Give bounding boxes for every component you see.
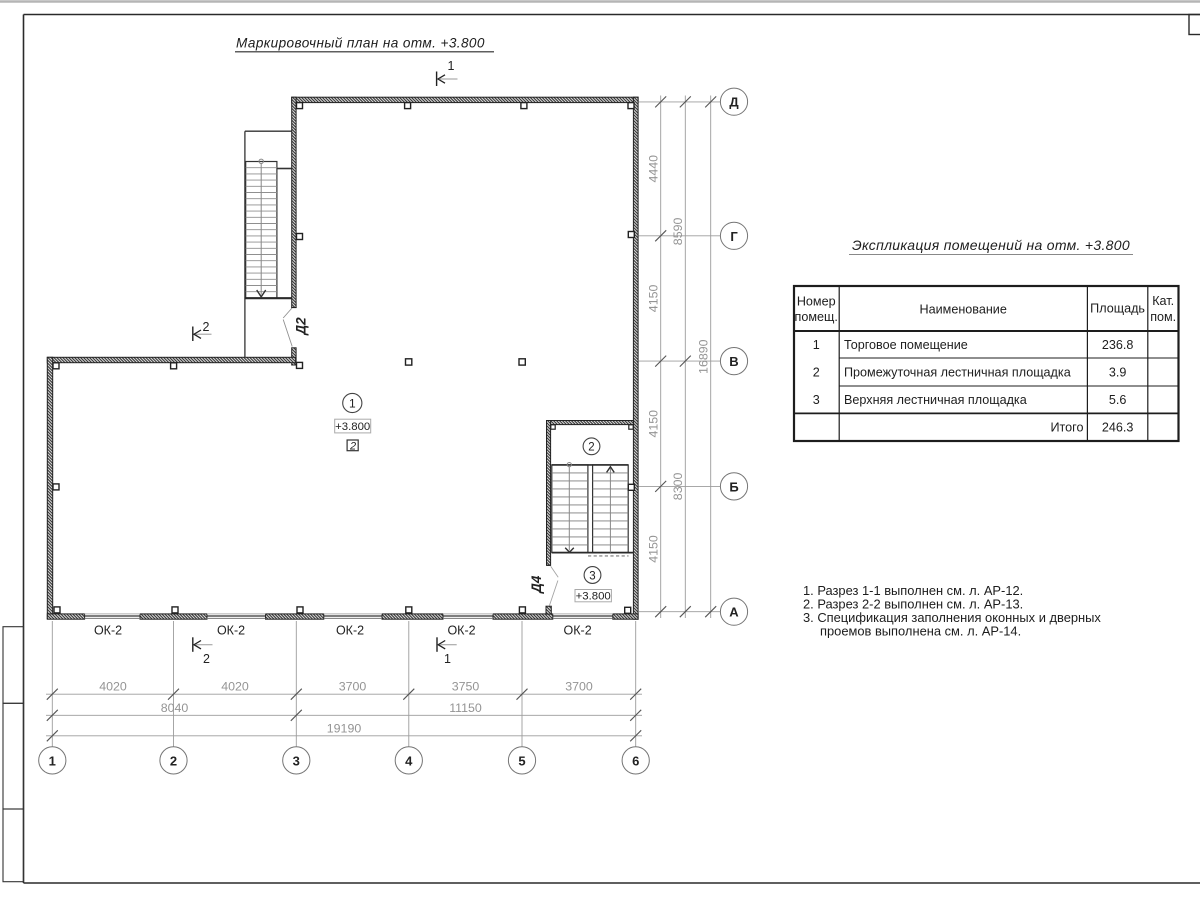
svg-text:4150: 4150 <box>647 410 661 438</box>
svg-text:Г: Г <box>730 229 738 244</box>
svg-text:Верхняя лестничная площадка: Верхняя лестничная площадка <box>844 393 1027 407</box>
svg-text:4020: 4020 <box>99 680 127 694</box>
svg-text:2: 2 <box>170 753 177 768</box>
svg-text:В: В <box>729 354 738 369</box>
svg-text:Наименование: Наименование <box>920 303 1007 317</box>
svg-text:пом.: пом. <box>1150 310 1176 324</box>
svg-text:Номер: Номер <box>797 295 836 309</box>
svg-text:3700: 3700 <box>565 680 593 694</box>
svg-text:4: 4 <box>405 753 413 768</box>
svg-text:3700: 3700 <box>339 680 367 694</box>
svg-text:236.8: 236.8 <box>1102 338 1134 352</box>
svg-text:5.6: 5.6 <box>1109 393 1127 407</box>
svg-text:3750: 3750 <box>452 680 480 694</box>
svg-text:8300: 8300 <box>671 473 685 501</box>
svg-text:3: 3 <box>293 753 300 768</box>
svg-text:8590: 8590 <box>671 218 685 246</box>
svg-text:Промежуточная лестничная площа: Промежуточная лестничная площадка <box>844 366 1071 380</box>
svg-text:246.3: 246.3 <box>1102 421 1134 435</box>
svg-text:Площадь: Площадь <box>1090 302 1145 316</box>
svg-text:4020: 4020 <box>221 680 249 694</box>
svg-text:3: 3 <box>589 570 595 582</box>
svg-text:проемов выполнена см. л. АР-14: проемов выполнена см. л. АР-14. <box>820 624 1021 639</box>
svg-text:1: 1 <box>444 652 451 666</box>
svg-text:1: 1 <box>813 338 820 352</box>
svg-text:19190: 19190 <box>327 721 362 735</box>
svg-text:2: 2 <box>349 440 356 452</box>
svg-text:ОК-2: ОК-2 <box>447 624 475 638</box>
svg-text:2: 2 <box>588 442 594 454</box>
svg-text:ОК-2: ОК-2 <box>217 624 245 638</box>
svg-text:помещ.: помещ. <box>795 310 838 324</box>
svg-text:2: 2 <box>203 320 210 334</box>
svg-text:Итого: Итого <box>1050 421 1083 435</box>
svg-text:3.9: 3.9 <box>1109 366 1127 380</box>
svg-text:1: 1 <box>349 396 356 410</box>
svg-text:Торговое помещение: Торговое помещение <box>844 338 968 352</box>
svg-text:4440: 4440 <box>647 155 661 183</box>
svg-text:Б: Б <box>729 479 738 494</box>
svg-text:Д2: Д2 <box>294 317 309 336</box>
svg-text:+3.800: +3.800 <box>576 591 611 603</box>
svg-text:Экспликация помещений на отм.: Экспликация помещений на отм. +3.800 <box>852 237 1130 253</box>
svg-text:2: 2 <box>203 652 210 666</box>
svg-text:1: 1 <box>49 753 56 768</box>
svg-text:1: 1 <box>448 59 455 73</box>
svg-text:ОК-2: ОК-2 <box>94 624 122 638</box>
svg-text:4150: 4150 <box>647 535 661 563</box>
svg-text:11150: 11150 <box>449 701 482 715</box>
svg-text:8040: 8040 <box>161 701 189 715</box>
svg-text:+3.800: +3.800 <box>335 421 370 433</box>
svg-text:4150: 4150 <box>647 285 661 313</box>
svg-text:ОК-2: ОК-2 <box>336 624 364 638</box>
svg-text:Д4: Д4 <box>529 575 544 594</box>
svg-text:ОК-2: ОК-2 <box>564 624 592 638</box>
svg-text:5: 5 <box>518 753 525 768</box>
svg-text:Кат.: Кат. <box>1152 294 1174 308</box>
svg-text:16890: 16890 <box>696 339 710 374</box>
svg-text:А: А <box>729 605 739 620</box>
svg-text:Д: Д <box>729 95 739 110</box>
svg-text:3: 3 <box>813 393 820 407</box>
svg-text:2: 2 <box>813 366 820 380</box>
svg-text:Маркировочный план на отм. +3.: Маркировочный план на отм. +3.800 <box>236 36 485 51</box>
svg-text:6: 6 <box>632 753 639 768</box>
